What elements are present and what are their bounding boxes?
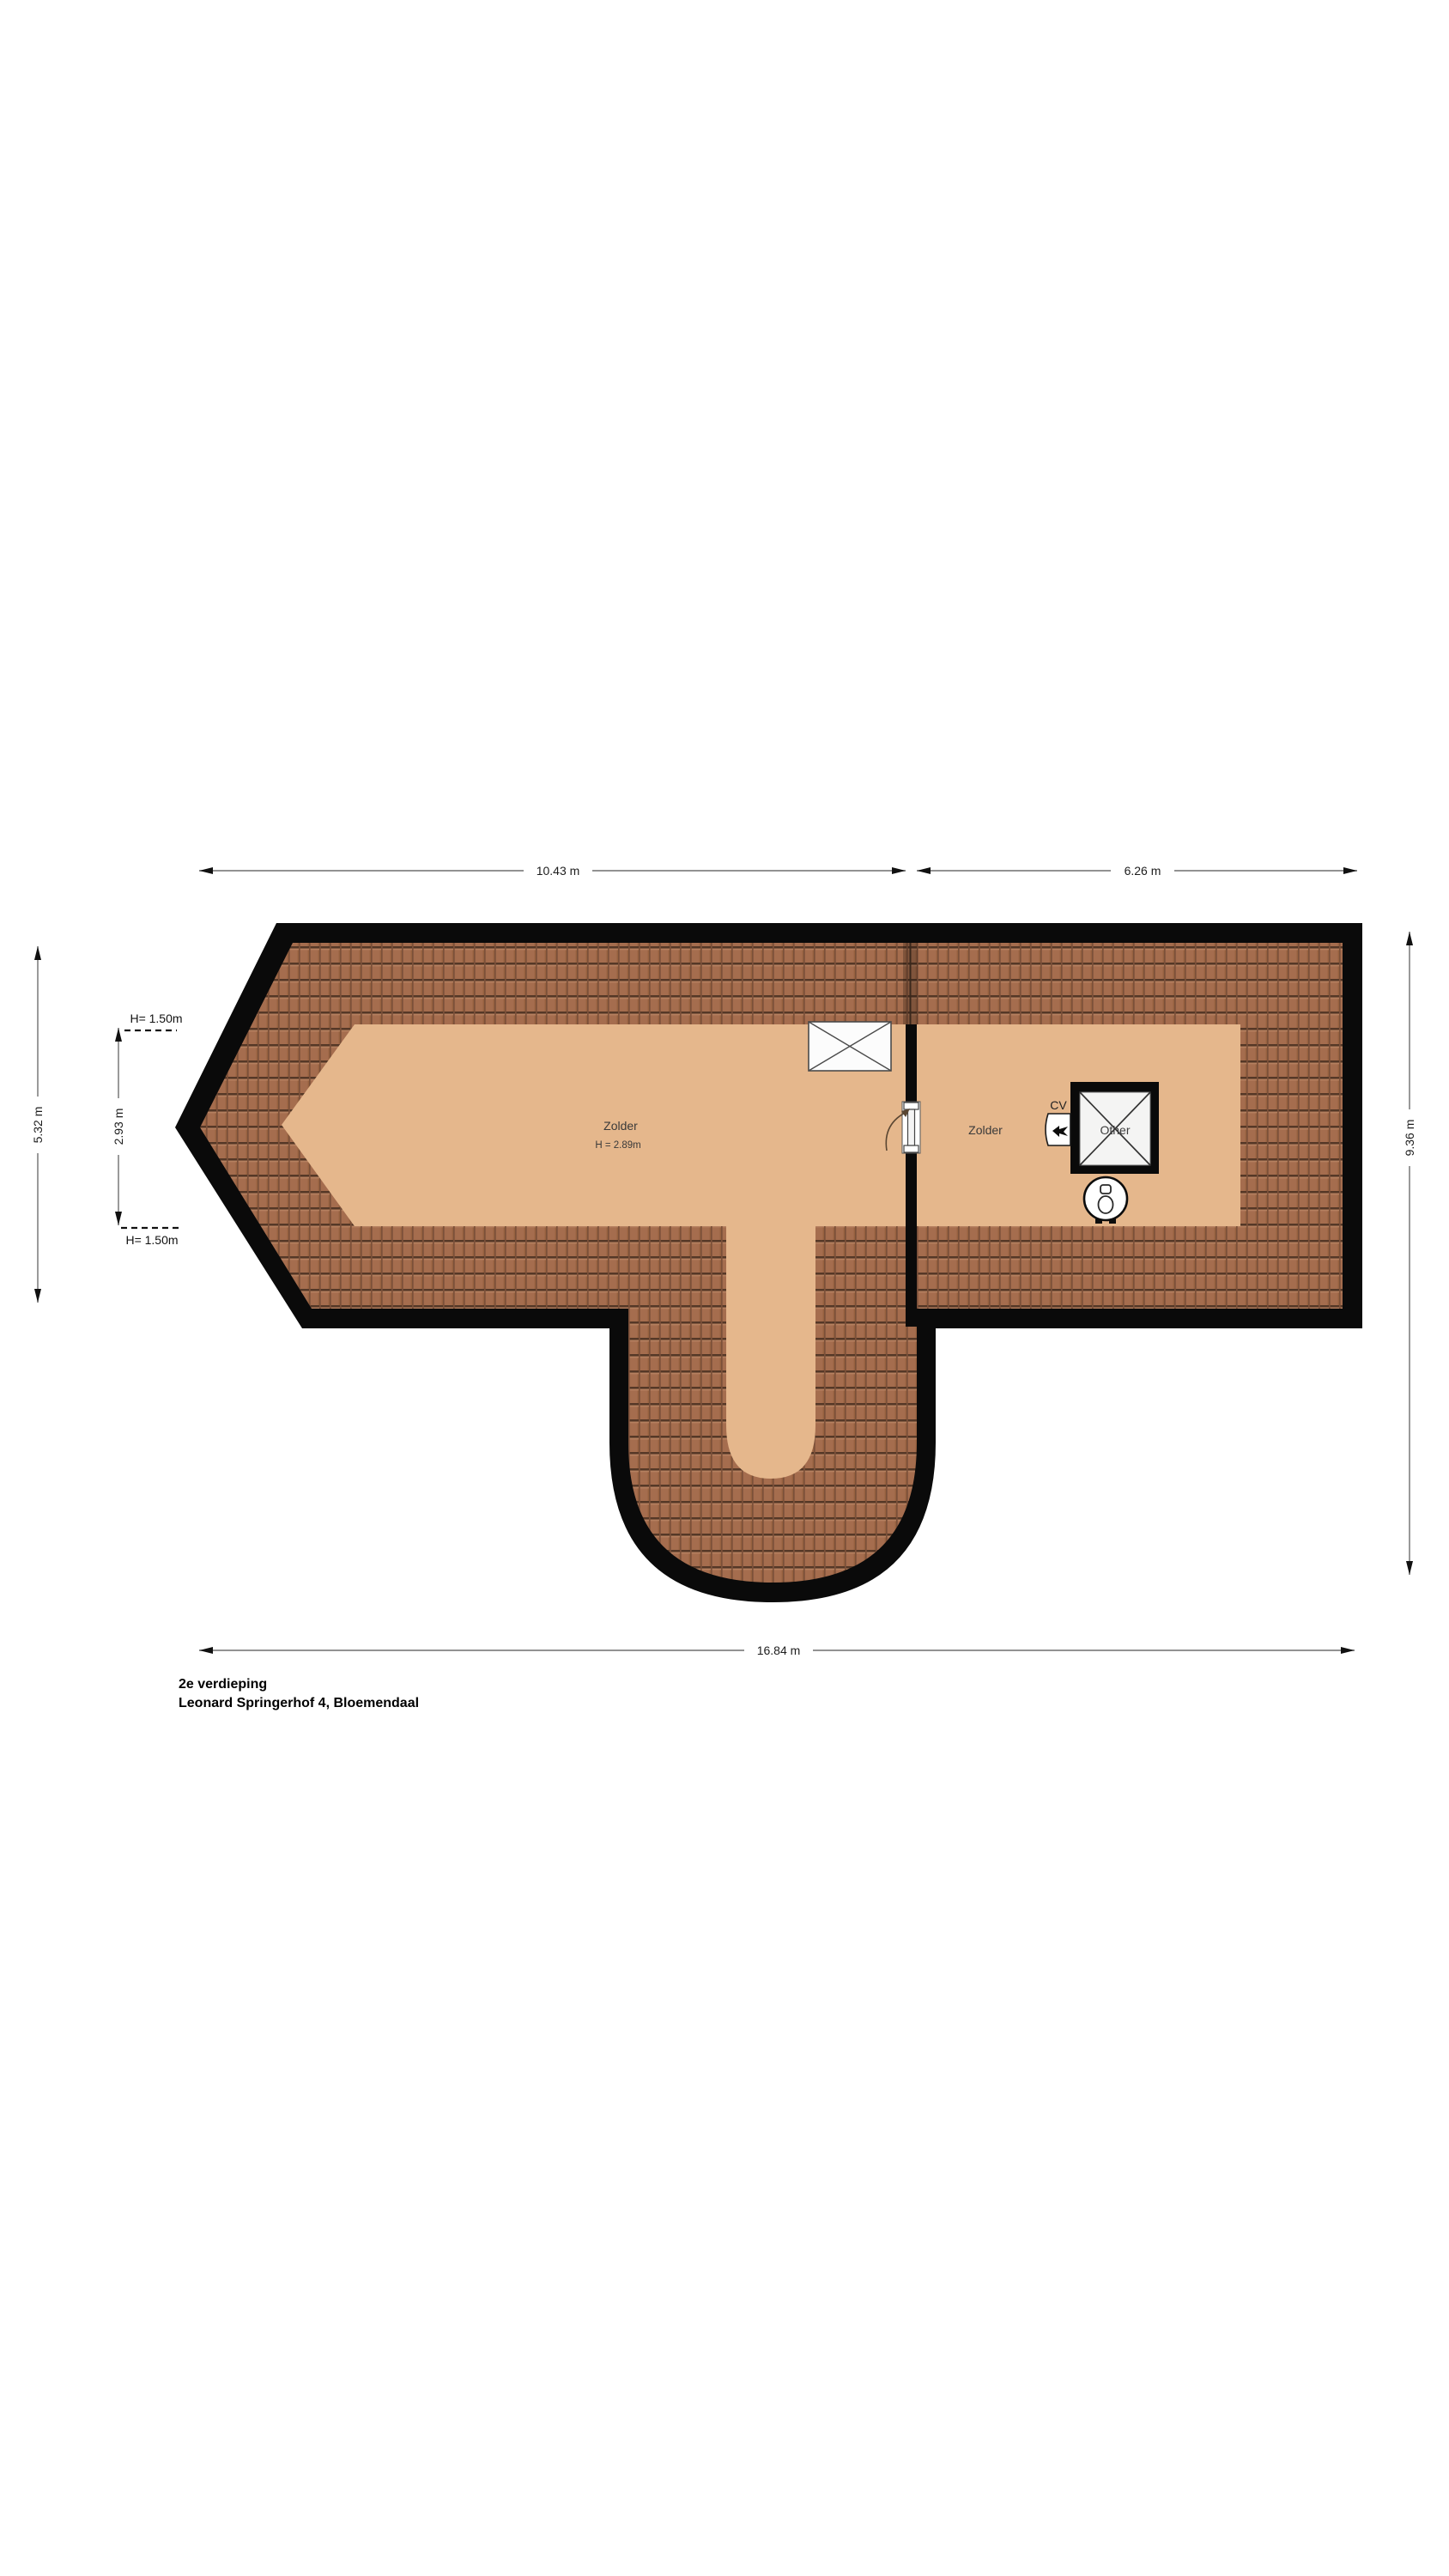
room-right-name: Zolder (968, 1123, 1003, 1137)
caption-address: Leonard Springerhof 4, Bloemendaal (179, 1696, 419, 1710)
height-top-label: H= 1.50m (130, 1012, 182, 1025)
dimension-top-right-value: 6.26 m (1125, 864, 1161, 878)
height-reference-top: H= 1.50m (124, 1012, 183, 1030)
dimension-right-value: 9.36 m (1403, 1120, 1416, 1157)
height-reference-bottom: H= 1.50m (121, 1228, 181, 1247)
building: Other CV (175, 923, 1362, 1602)
room-left-name: Zolder (603, 1119, 638, 1133)
wall-upper (906, 1024, 917, 1102)
dimension-top-left-value: 10.43 m (537, 864, 580, 878)
room-left-height: H = 2.89m (595, 1140, 640, 1151)
cv-label: CV (1050, 1098, 1067, 1112)
wall-lower (906, 1153, 917, 1327)
dimension-left-outer-value: 5.32 m (31, 1107, 45, 1144)
dimension-top-right: 6.26 m (917, 863, 1357, 878)
shaft-cross-icon: Other (1070, 1082, 1159, 1174)
dimension-bottom: 16.84 m (199, 1643, 1355, 1658)
dimension-top-left: 10.43 m (199, 863, 906, 878)
skylight-window-icon (809, 1022, 891, 1071)
cv-unit: CV (1046, 1098, 1070, 1145)
shaft-label: Other (1100, 1123, 1130, 1137)
dimension-left-outer: 5.32 m (29, 946, 46, 1303)
dimension-left-inner: 2.93 m (110, 1028, 127, 1225)
caption-floor: 2e verdieping (179, 1677, 267, 1692)
floorplan-canvas: Other CV 10.43 m 6.26 m (0, 0, 1449, 2576)
dividing-wall (906, 1024, 917, 1327)
floorplan-page: Other CV 10.43 m 6.26 m (0, 0, 1449, 2576)
dimension-right: 9.36 m (1401, 932, 1418, 1575)
height-bottom-label: H= 1.50m (125, 1233, 178, 1247)
dimension-bottom-value: 16.84 m (757, 1643, 801, 1657)
dimension-left-inner-value: 2.93 m (112, 1109, 125, 1145)
caption: 2e verdieping Leonard Springerhof 4, Blo… (179, 1677, 419, 1710)
